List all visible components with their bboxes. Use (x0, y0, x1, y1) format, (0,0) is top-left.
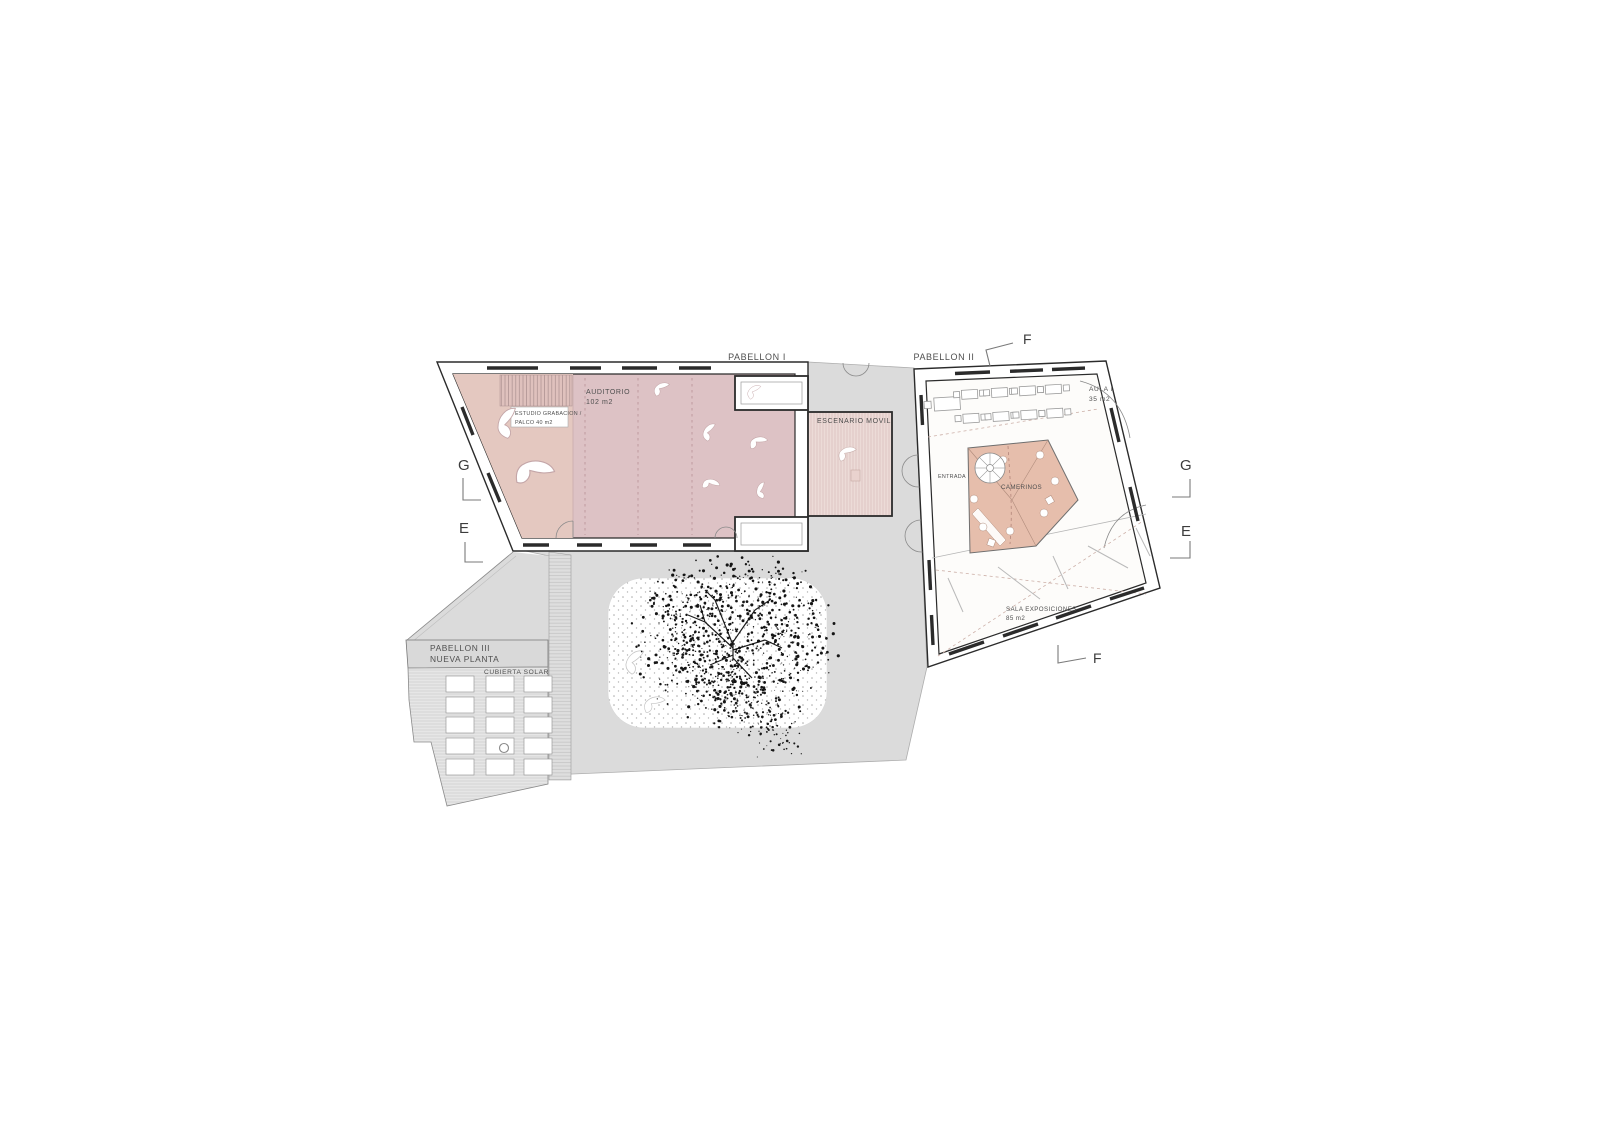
section-marker-f-bottom: F (1093, 650, 1102, 666)
section-bracket-e-right (1170, 541, 1190, 558)
section-bracket-f-top (986, 343, 1013, 366)
label-pabellon-3-2: NUEVA PLANTA (430, 654, 499, 664)
label-aula: AULA I (1089, 386, 1113, 393)
label-estudio-1: ESTUDIO GRABACION / (515, 411, 582, 417)
label-estudio-2: PALCO 40 m2 (515, 420, 553, 426)
label-pabellon-3-1: PABELLON III (430, 643, 490, 653)
floor-plan-page: PABELLON I PABELLON II AUDITORIO 102 m2 … (0, 0, 1600, 1131)
section-marker-g-left: G (458, 457, 470, 474)
label-sala: SALA EXPOSICIONES (1006, 606, 1077, 613)
label-camerinos: CAMERINOS (1001, 484, 1042, 491)
label-escenario: ESCENARIO MOVIL (817, 418, 891, 425)
label-auditorio: AUDITORIO (586, 389, 630, 396)
label-entrada: ENTRADA (938, 474, 966, 480)
label-cubierta-solar: CUBIERTA SOLAR (484, 669, 549, 676)
section-marker-e-left: E (459, 520, 470, 537)
section-marker-f-top: F (1023, 331, 1032, 347)
escenario-movil-platform (808, 412, 892, 516)
pabellon-1-building (437, 362, 869, 551)
section-bracket-g-left (463, 478, 481, 500)
label-pabellon-1: PABELLON I (728, 352, 786, 362)
section-bracket-e-left (465, 542, 483, 562)
pabellon-2-building (902, 361, 1160, 667)
spiral-stair-icon (975, 453, 1005, 483)
label-auditorio-area: 102 m2 (586, 399, 613, 406)
section-marker-e-right: E (1181, 523, 1192, 540)
floor-plan-canvas: PABELLON I PABELLON II AUDITORIO 102 m2 … (0, 0, 1600, 1131)
section-bracket-g-right (1172, 479, 1190, 497)
label-pabellon-2: PABELLON II (914, 352, 975, 362)
section-bracket-f-bottom (1058, 645, 1086, 663)
pabellon-3-roof (406, 640, 552, 806)
section-marker-g-right: G (1180, 457, 1192, 474)
label-aula-area: 35 m2 (1089, 396, 1110, 403)
solar-panels-grid (446, 676, 552, 775)
label-sala-area: 85 m2 (1006, 615, 1025, 622)
palco-stairs (500, 375, 572, 406)
